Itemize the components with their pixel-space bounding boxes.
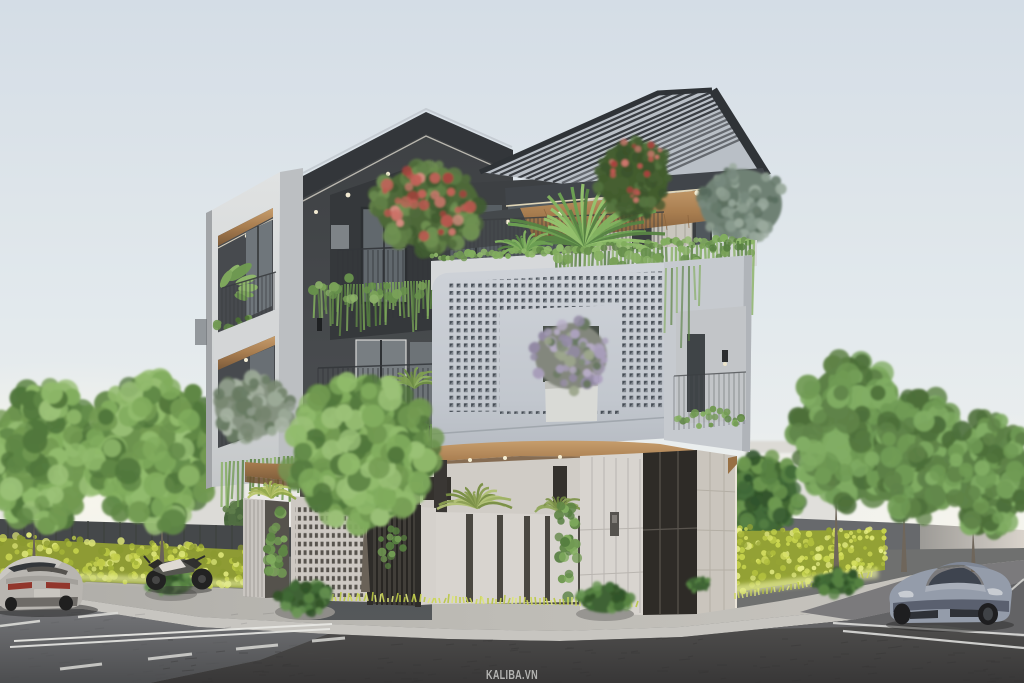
svg-text:KALIBA.VN: KALIBA.VN: [486, 667, 538, 682]
